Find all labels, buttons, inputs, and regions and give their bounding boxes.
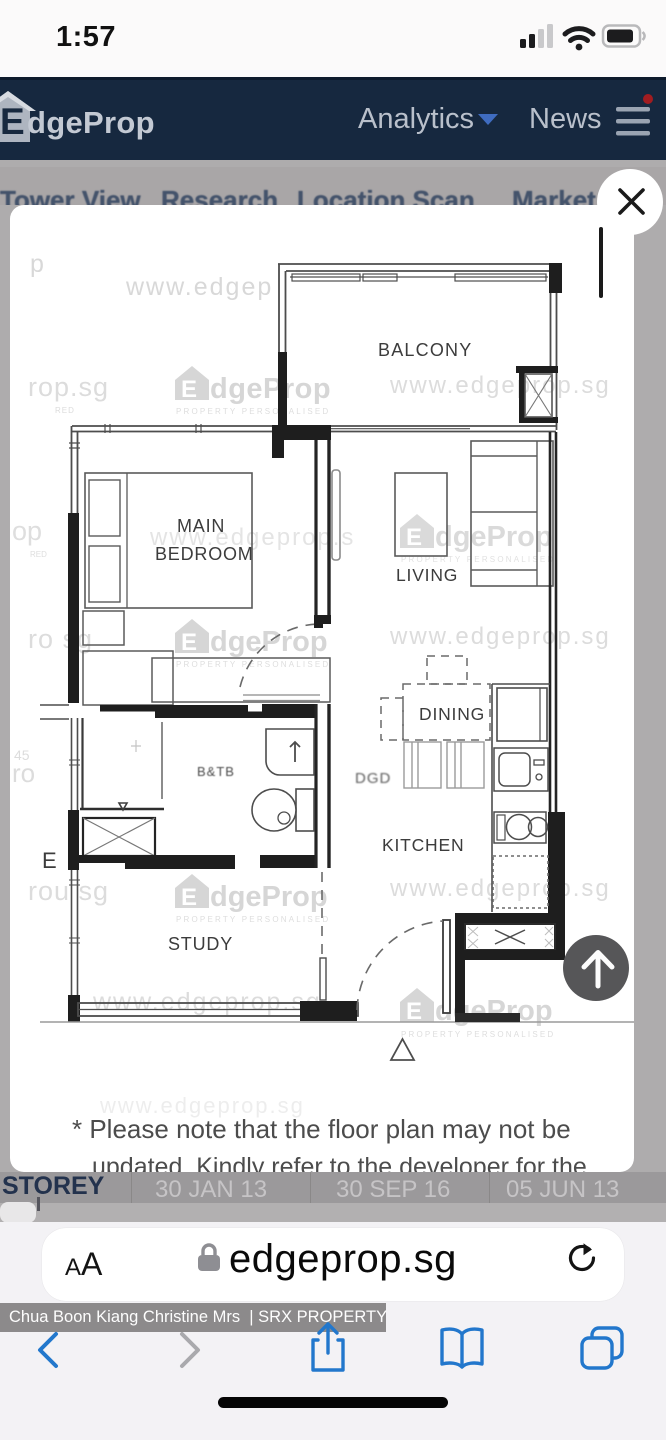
svg-text:KITCHEN: KITCHEN [382,835,464,855]
svg-text:dgeProp: dgeProp [210,626,328,658]
svg-text:PROPERTY PERSONALISED: PROPERTY PERSONALISED [176,915,330,924]
svg-text:E: E [181,376,197,403]
svg-text:E: E [42,848,57,873]
svg-text:DGD: DGD [355,770,391,787]
svg-text:www.edgeprop.sg: www.edgeprop.sg [92,988,322,1016]
svg-text:STUDY: STUDY [168,934,233,954]
svg-text:op: op [12,516,42,546]
svg-text:www.edgeprop.sg: www.edgeprop.sg [389,372,611,399]
svg-text:dgeProp: dgeProp [435,521,553,553]
svg-text:www.edgeprop.sg: www.edgeprop.sg [389,875,611,902]
svg-text:rop.sg: rop.sg [28,372,109,402]
svg-text:LIVING: LIVING [396,565,458,585]
svg-text:dgeProp: dgeProp [27,105,155,140]
svg-text:RED: RED [55,406,75,415]
svg-text:E: E [181,629,197,656]
svg-text:rou sg: rou sg [28,876,109,906]
svg-text:BALCONY: BALCONY [378,340,472,360]
svg-text:PROPERTY PERSONALISED: PROPERTY PERSONALISED [401,1030,555,1039]
svg-text:DINING: DINING [419,704,485,724]
svg-text:p: p [30,250,44,278]
svg-text:B&TB: B&TB [197,764,235,779]
svg-text:E: E [181,884,197,911]
svg-text:MAIN: MAIN [177,516,225,536]
svg-text:PROPERTY PERSONALISED: PROPERTY PERSONALISED [176,660,330,669]
svg-text:PROPERTY PERSONALISED: PROPERTY PERSONALISED [176,407,330,416]
svg-text:E: E [406,998,422,1025]
svg-text:E: E [0,101,25,142]
svg-text:E: E [406,524,422,551]
svg-text:www.edgeprop.sg: www.edgeprop.sg [389,623,611,650]
svg-text:www.edgep: www.edgep [125,273,273,301]
svg-text:dgeProp: dgeProp [210,373,331,405]
svg-text:RED: RED [30,550,47,559]
svg-text:45: 45 [14,747,30,763]
svg-text:BEDROOM: BEDROOM [155,544,254,564]
svg-text:dgeProp: dgeProp [210,881,328,913]
